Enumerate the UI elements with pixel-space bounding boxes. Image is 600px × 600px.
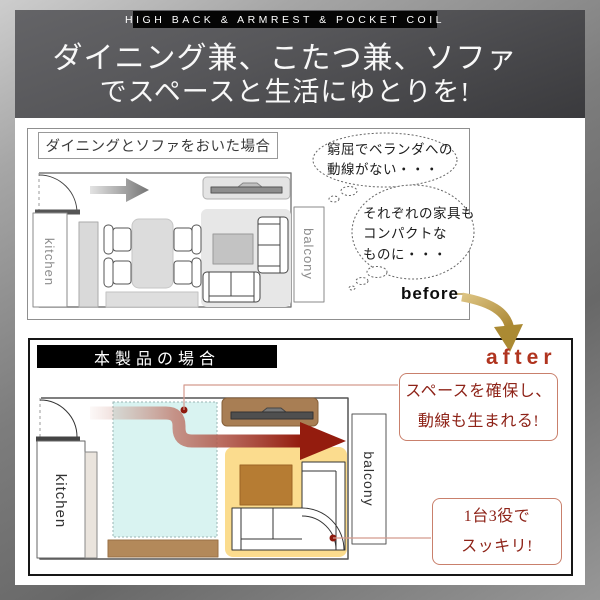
bubble2-line2: コンパクトな [363, 224, 475, 244]
bubble2-line3: ものに・・・ [363, 245, 475, 265]
bubble1-line1: 窮屈でベランダへの [327, 140, 453, 160]
callout2-line1: 1台3役で [464, 502, 531, 532]
before-panel-label: ダイニングとソファをおいた場合 [38, 132, 278, 159]
header-badge: HIGH BACK & ARMREST & POCKET COIL [133, 11, 437, 28]
bubble1-line2: 動線がない・・・ [327, 160, 453, 180]
callout1-line2: 動線も生まれる! [418, 407, 539, 437]
thought-bubble-2-text: それぞれの家具も コンパクトな ものに・・・ [363, 204, 475, 265]
thought-bubble-1-text: 窮屈でベランダへの 動線がない・・・ [327, 140, 453, 181]
ad-infographic: HIGH BACK & ARMREST & POCKET COIL ダイニング兼… [0, 0, 600, 600]
callout-three-in-one: 1台3役で スッキリ! [432, 498, 562, 565]
callout2-line2: スッキリ! [461, 532, 533, 562]
after-tag: after [486, 346, 576, 370]
after-balcony-label: balcony [360, 424, 378, 534]
before-kitchen-label: kitchen [41, 225, 59, 299]
after-kitchen-label: kitchen [52, 456, 70, 546]
after-panel-label: 本製品の場合 [37, 345, 277, 368]
callout1-line1: スペースを確保し、 [405, 377, 552, 407]
before-tag: before [401, 284, 463, 304]
main-title-line2: でスペースと生活にゆとりを! [0, 70, 570, 109]
bubble2-line1: それぞれの家具も [363, 204, 475, 224]
before-balcony-label: balcony [300, 214, 318, 294]
callout-space-secured: スペースを確保し、 動線も生まれる! [399, 373, 558, 441]
